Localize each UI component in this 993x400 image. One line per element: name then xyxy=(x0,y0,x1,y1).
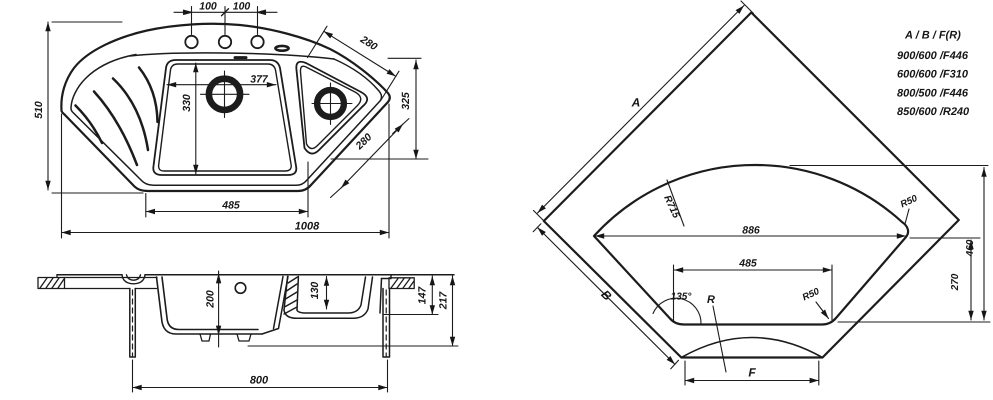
svg-text:F: F xyxy=(748,366,756,380)
svg-text:485: 485 xyxy=(738,258,757,270)
svg-text:377: 377 xyxy=(250,73,269,85)
svg-text:325: 325 xyxy=(400,92,412,110)
svg-text:100: 100 xyxy=(233,1,251,13)
svg-text:886: 886 xyxy=(742,225,760,237)
svg-text:R: R xyxy=(707,294,715,306)
svg-text:A / B / F(R): A / B / F(R) xyxy=(904,30,961,42)
svg-text:200: 200 xyxy=(205,290,217,309)
svg-text:485: 485 xyxy=(221,200,240,212)
svg-text:130: 130 xyxy=(309,282,321,300)
svg-text:800: 800 xyxy=(250,375,269,387)
svg-text:147: 147 xyxy=(417,286,429,305)
svg-text:R50: R50 xyxy=(899,193,920,211)
svg-text:135°: 135° xyxy=(671,292,693,303)
svg-text:800/500 /F446: 800/500 /F446 xyxy=(897,88,969,100)
svg-text:460: 460 xyxy=(965,239,976,257)
svg-text:R715: R715 xyxy=(661,194,681,221)
svg-text:330: 330 xyxy=(181,94,193,112)
svg-text:A: A xyxy=(631,96,641,110)
svg-text:100: 100 xyxy=(199,1,217,13)
svg-text:280: 280 xyxy=(357,33,379,53)
svg-text:850/600 /R240: 850/600 /R240 xyxy=(897,106,970,118)
svg-text:R50: R50 xyxy=(801,286,822,304)
svg-text:217: 217 xyxy=(438,291,450,311)
svg-text:510: 510 xyxy=(33,101,45,119)
svg-text:900/600 /F446: 900/600 /F446 xyxy=(897,50,969,62)
svg-text:1008: 1008 xyxy=(295,221,320,233)
svg-text:280: 280 xyxy=(353,131,375,153)
svg-text:270: 270 xyxy=(950,273,961,291)
svg-text:600/600 /F310: 600/600 /F310 xyxy=(897,69,969,81)
